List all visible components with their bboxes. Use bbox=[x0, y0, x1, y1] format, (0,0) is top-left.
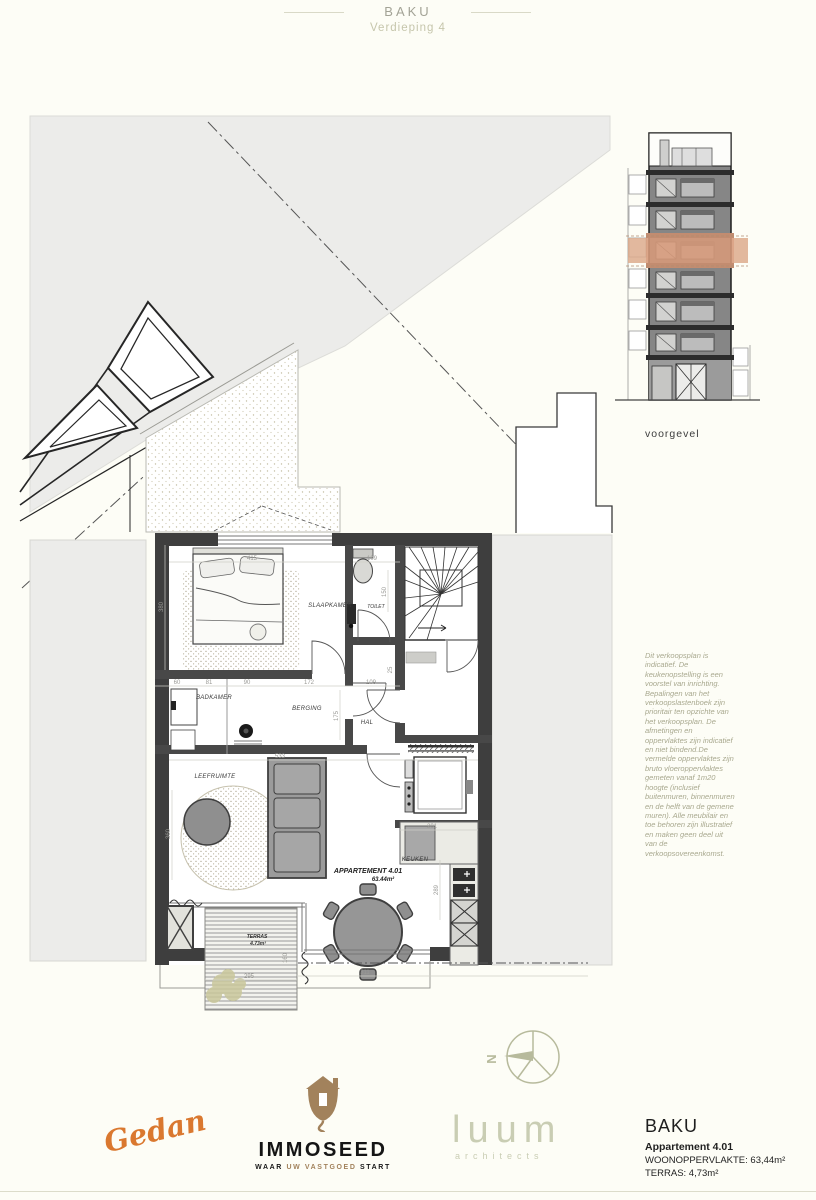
north-compass: N bbox=[484, 1031, 559, 1083]
svg-text:160: 160 bbox=[283, 952, 289, 963]
luum-subtitle: architects bbox=[455, 1151, 582, 1161]
info-project: BAKU bbox=[645, 1116, 805, 1137]
bed bbox=[182, 548, 300, 670]
luum-logo: luum architects bbox=[452, 1110, 582, 1161]
luum-name: luum bbox=[452, 1110, 582, 1150]
immoseed-tag-start: START bbox=[360, 1164, 391, 1171]
label-apartment: APPARTEMENT 4.01 bbox=[333, 868, 402, 875]
sales-disclaimer: Dit verkoopsplan is indicatief. De keuke… bbox=[645, 651, 737, 858]
immoseed-name: IMMOSEED bbox=[245, 1139, 401, 1162]
immoseed-seed-icon bbox=[300, 1074, 346, 1132]
label-leefruimte: LEEFRUIMTE bbox=[194, 774, 236, 780]
immoseed-tagline: WAAR UW VASTGOED START bbox=[245, 1164, 401, 1171]
label-terras: TERRAS bbox=[247, 934, 268, 940]
svg-text:311: 311 bbox=[360, 970, 370, 976]
unit-info-block: BAKU Appartement 4.01 WOONOPPERVLAKTE: 6… bbox=[645, 1116, 805, 1179]
svg-text:109: 109 bbox=[367, 556, 378, 562]
info-living-area: WOONOPPERVLAKTE: 63,44m² bbox=[645, 1155, 805, 1166]
label-keuken: KEUKEN bbox=[402, 857, 429, 863]
svg-text:150: 150 bbox=[382, 586, 388, 597]
highlighted-floor bbox=[626, 233, 748, 268]
shaft-box bbox=[167, 906, 193, 950]
elevation-caption: voorgevel bbox=[645, 428, 700, 440]
svg-text:60: 60 bbox=[174, 680, 181, 686]
info-unit: Appartement 4.01 bbox=[645, 1141, 805, 1153]
elevation-ground-floor bbox=[649, 360, 731, 400]
label-slaapkamer: SLAAPKAMER bbox=[308, 603, 352, 609]
svg-text:415: 415 bbox=[247, 556, 258, 562]
neighbour-mass-right bbox=[492, 535, 612, 965]
label-terras-area: 4.73m² bbox=[249, 941, 266, 947]
immoseed-tag-vastgoed: UW VASTGOED bbox=[287, 1164, 357, 1171]
info-terrace-area: TERRAS: 4,73m² bbox=[645, 1168, 805, 1179]
label-badkamer: BADKAMER bbox=[196, 695, 232, 701]
svg-text:289: 289 bbox=[434, 884, 440, 895]
label-toilet: TOILET bbox=[367, 604, 385, 610]
svg-text:81: 81 bbox=[206, 680, 213, 686]
sheet-bottom-rule bbox=[0, 1191, 816, 1192]
label-berging: BERGING bbox=[292, 706, 322, 712]
svg-text:533: 533 bbox=[275, 754, 286, 760]
svg-text:380: 380 bbox=[159, 601, 165, 612]
plan-sheet: BAKU Verdieping 4 bbox=[0, 0, 816, 1200]
svg-text:25: 25 bbox=[388, 666, 394, 673]
svg-text:109: 109 bbox=[366, 680, 377, 686]
label-hal: HAL bbox=[361, 720, 374, 726]
compass-north-label: N bbox=[484, 1054, 499, 1063]
floorplan-drawing: 415 109 380 150 60 81 90 172 109 25 175 … bbox=[0, 0, 816, 1200]
svg-text:90: 90 bbox=[244, 680, 251, 686]
neighbour-mass-left bbox=[30, 540, 146, 961]
svg-text:172: 172 bbox=[304, 680, 315, 686]
svg-text:295: 295 bbox=[244, 974, 255, 980]
front-elevation: voorgevel bbox=[615, 133, 760, 440]
immoseed-tag-waar: WAAR bbox=[255, 1164, 283, 1171]
svg-text:201: 201 bbox=[427, 824, 438, 830]
elevator bbox=[405, 743, 478, 820]
label-apartment-area: 63.44m² bbox=[372, 876, 395, 883]
immoseed-logo: IMMOSEED WAAR UW VASTGOED START bbox=[245, 1074, 401, 1171]
sofa bbox=[268, 758, 326, 878]
neighbour-building-right bbox=[516, 393, 612, 533]
svg-text:175: 175 bbox=[334, 710, 340, 721]
svg-text:360: 360 bbox=[166, 828, 172, 839]
